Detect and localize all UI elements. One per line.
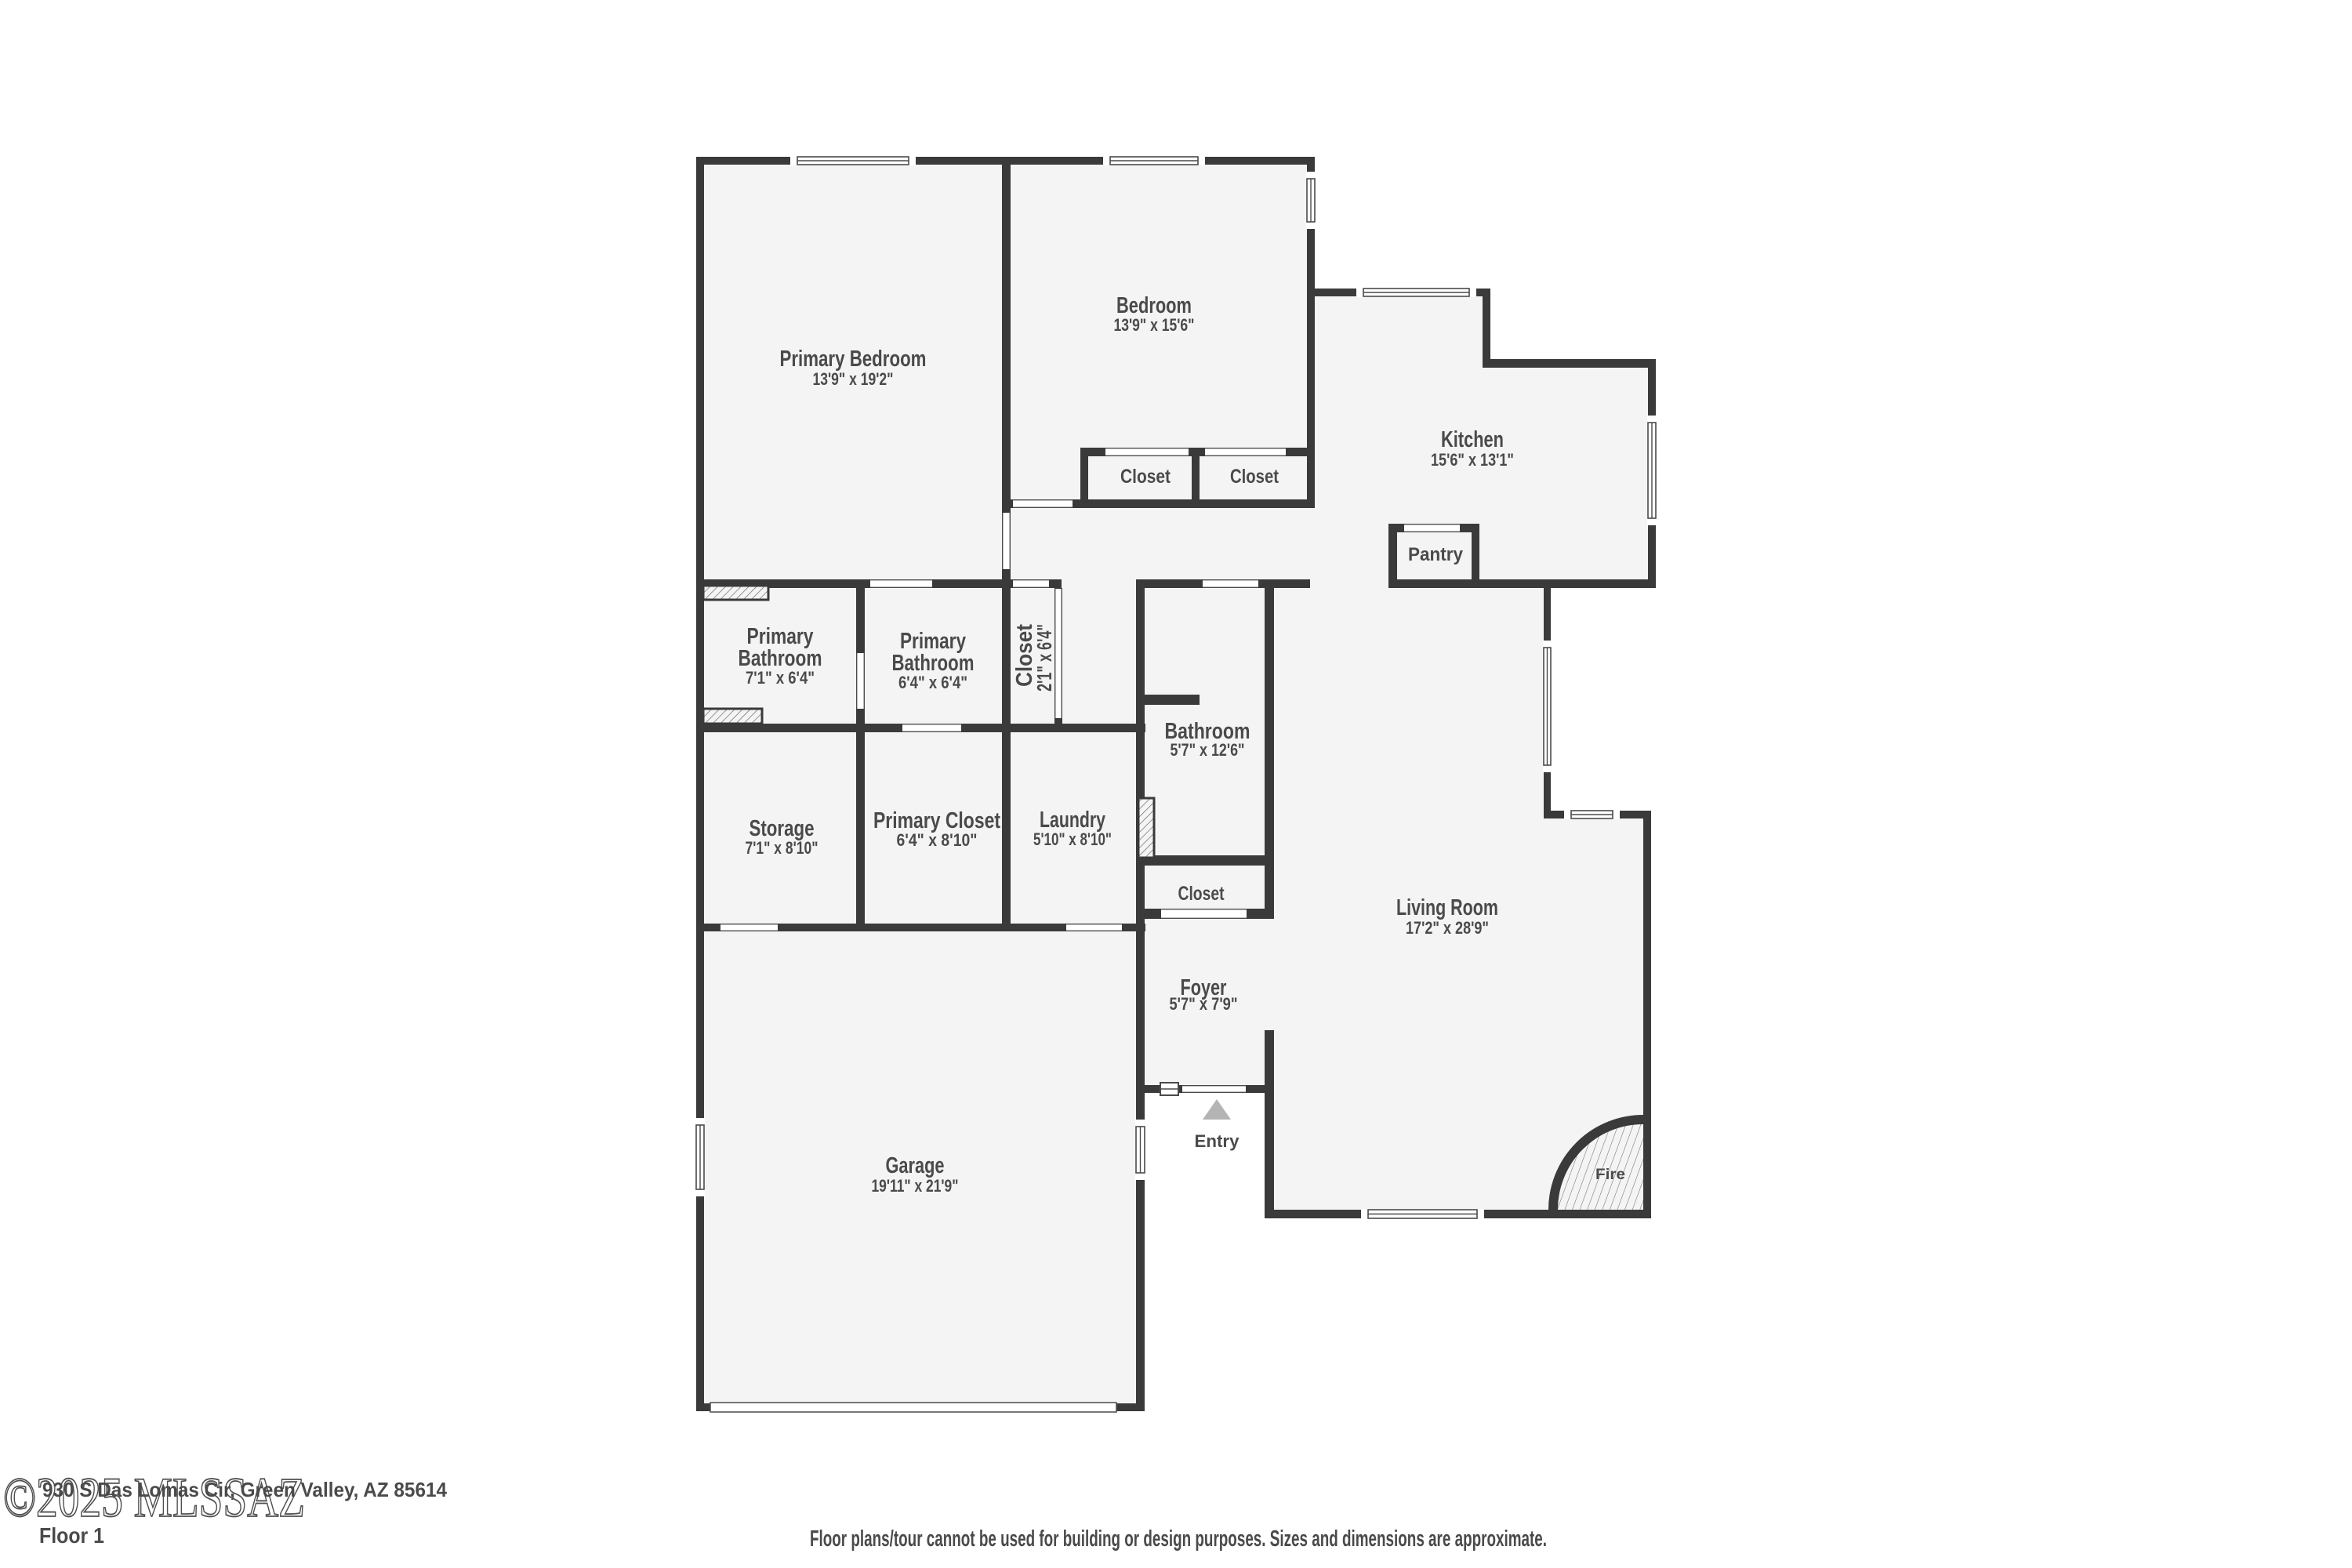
- svg-text:Closet: Closet: [1178, 883, 1225, 905]
- svg-text:Garage: Garage: [886, 1153, 945, 1178]
- svg-text:Closet: Closet: [1120, 466, 1171, 488]
- svg-text:6'4" x 6'4": 6'4" x 6'4": [898, 673, 967, 692]
- svg-text:Pantry: Pantry: [1408, 544, 1464, 565]
- svg-text:Floor 1: Floor 1: [39, 1523, 104, 1548]
- svg-text:2'1" x 6'4": 2'1" x 6'4": [1033, 624, 1056, 691]
- svg-text:5'10" x 8'10": 5'10" x 8'10": [1033, 829, 1112, 849]
- svg-text:13'9" x 15'6": 13'9" x 15'6": [1114, 315, 1195, 335]
- svg-text:Floor plans/tour cannot be use: Floor plans/tour cannot be used for buil…: [810, 1526, 1547, 1552]
- svg-text:7'1" x 6'4": 7'1" x 6'4": [746, 668, 815, 688]
- svg-text:6'4" x 8'10": 6'4" x 8'10": [897, 830, 978, 850]
- svg-text:15'6" x 13'1": 15'6" x 13'1": [1431, 450, 1514, 470]
- svg-text:Fire: Fire: [1595, 1167, 1625, 1183]
- svg-text:17'2" x 28'9": 17'2" x 28'9": [1406, 918, 1489, 938]
- svg-text:19'11" x 21'9": 19'11" x 21'9": [872, 1176, 959, 1196]
- svg-text:5'7" x 7'9": 5'7" x 7'9": [1170, 994, 1238, 1014]
- svg-text:13'9" x 19'2": 13'9" x 19'2": [813, 369, 894, 389]
- svg-text:Living Room: Living Room: [1396, 895, 1498, 920]
- svg-text:930 S Das Lomas Cir, Green Val: 930 S Das Lomas Cir, Green Valley, AZ 85…: [42, 1478, 447, 1501]
- svg-text:Primary Bedroom: Primary Bedroom: [780, 347, 927, 372]
- svg-text:Entry: Entry: [1195, 1131, 1240, 1151]
- svg-text:5'7" x 12'6": 5'7" x 12'6": [1171, 740, 1245, 760]
- svg-text:7'1" x 8'10": 7'1" x 8'10": [746, 838, 818, 858]
- svg-text:Kitchen: Kitchen: [1441, 427, 1504, 452]
- svg-text:Closet: Closet: [1230, 466, 1279, 488]
